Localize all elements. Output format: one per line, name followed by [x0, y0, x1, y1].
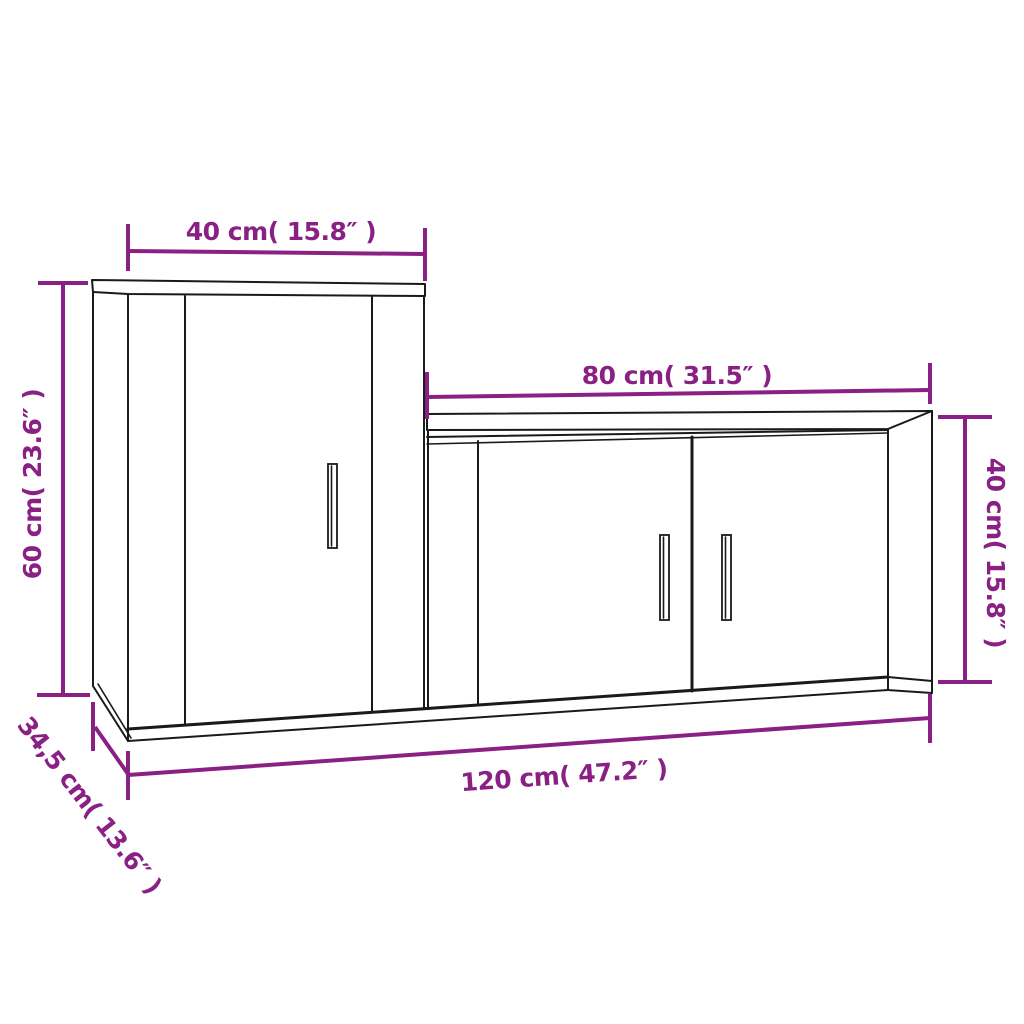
left-cabinet-bottom-depth-inner-edge [98, 684, 131, 738]
dimension-tall-cabinet-height: 60 cm( 23.6″ ) [18, 283, 90, 695]
dimension-depth: 34,5 cm( 13.6″ ) [12, 702, 168, 899]
cabinet-base-bottom-edge [128, 690, 888, 741]
cabinet-base-top-edge [128, 677, 888, 729]
furniture-dimension-diagram: 40 cm( 15.8″ ) 60 cm( 23.6″ ) 80 cm( 31.… [0, 0, 1024, 1024]
dimension-tall-cabinet-width: 40 cm( 15.8″ ) [128, 217, 425, 281]
right-cabinet-side-base-edge [888, 690, 932, 693]
dimension-label-tall-width: 40 cm( 15.8″ ) [186, 217, 376, 246]
diagram-page: 40 cm( 15.8″ ) 60 cm( 23.6″ ) 80 cm( 31.… [0, 0, 1024, 1024]
right-cabinet-door-top-edge [427, 433, 888, 444]
left-cabinet-drawing [92, 280, 425, 741]
dimension-label-low-width: 80 cm( 31.5″ ) [582, 361, 772, 390]
dimension-line [427, 390, 930, 397]
right-cabinet-top-face [427, 411, 932, 430]
dimension-low-cabinet-width: 80 cm( 31.5″ ) [427, 361, 930, 419]
right-cabinet-side-bottom-edge [888, 677, 932, 681]
right-cabinet-drawing [427, 411, 932, 709]
dimension-label-tall-height: 60 cm( 23.6″ ) [18, 389, 47, 579]
left-cabinet-door-handle [328, 464, 337, 548]
dimension-line [128, 251, 425, 254]
dimension-low-cabinet-height: 40 cm( 15.8″ ) [938, 417, 1010, 682]
cabinet-base-lines [128, 677, 888, 741]
dimension-label-low-height: 40 cm( 15.8″ ) [981, 458, 1010, 648]
dimension-label-total-width: 120 cm( 47.2″ ) [460, 754, 669, 797]
right-cabinet-right-door-handle [722, 535, 731, 620]
right-cabinet-top-panel-edge [427, 430, 888, 437]
right-cabinet-left-door-handle [660, 535, 669, 620]
dimension-total-width: 120 cm( 47.2″ ) [128, 694, 930, 800]
left-cabinet-top-face [92, 280, 425, 296]
